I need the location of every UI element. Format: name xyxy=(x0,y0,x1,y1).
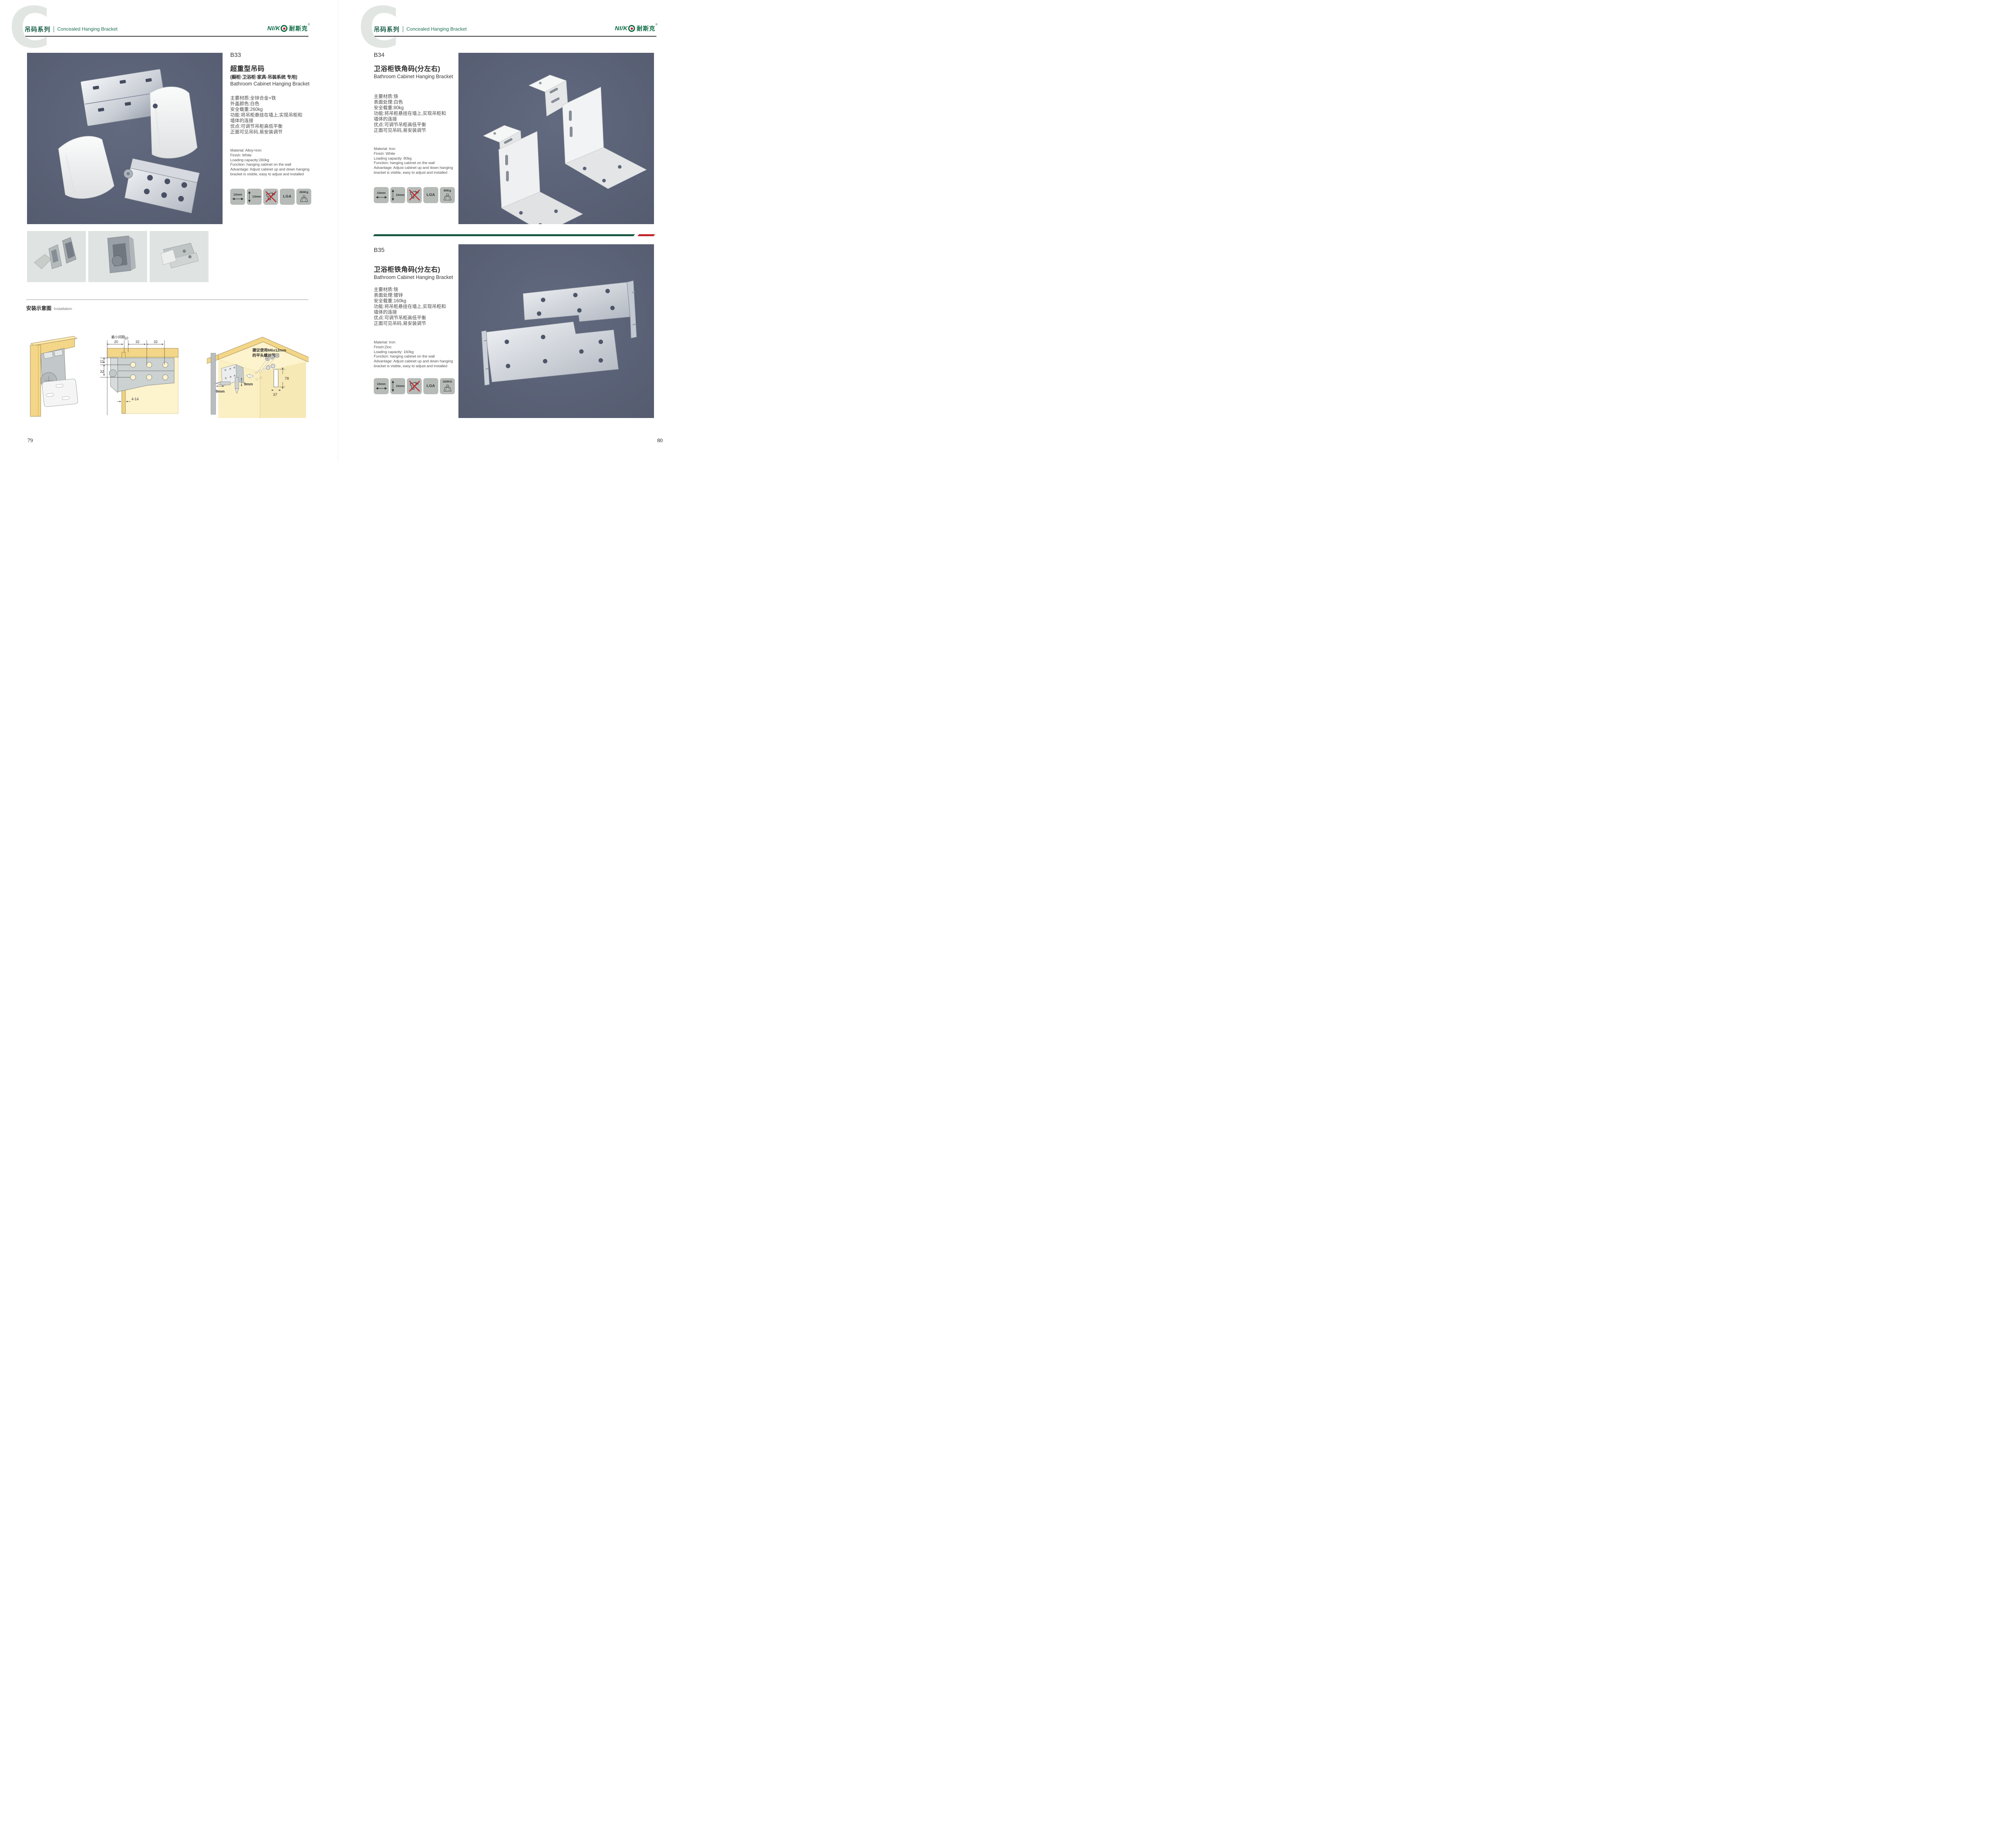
spec-line: Material: Alloy+iron xyxy=(230,148,316,153)
spec-line: Loading capacity: 160kg xyxy=(374,349,459,354)
spec-line: Function: hanging cabinet on the wall xyxy=(374,354,459,359)
product-title-cn: 卫浴柜铁角码(分左右) xyxy=(374,63,459,73)
spec-line: 功能:将吊柜悬挂在墙上,实现吊柜和 xyxy=(374,111,459,116)
mounting-slot xyxy=(274,369,278,387)
spec-line: 主要材质:铁 xyxy=(374,94,459,100)
product-title-en: Bathroom Cabinet Hanging Bracket xyxy=(230,81,316,87)
vertical-arrow-icon xyxy=(248,191,251,203)
feature-icons: 10mm 15mm xyxy=(374,378,459,394)
spec-line: Advantage: Adjust cabinet up and down ha… xyxy=(374,359,459,364)
icon-tile-height: 13mm xyxy=(247,189,262,205)
weight-icon xyxy=(298,195,310,203)
brand-latin: NI/K xyxy=(267,25,280,32)
product-b33: B33 超重型吊码 (橱柜·卫浴柜·家具·吊装系统 专用) Bathroom C… xyxy=(230,52,316,205)
feature-icons: 12mm 13mm xyxy=(230,189,316,205)
spec-line: 正面可见吊码,易安装调节 xyxy=(374,321,459,327)
installation-title-en: Installation xyxy=(54,307,72,311)
brand-logo: NI/K 耐斯克 ® xyxy=(267,24,310,33)
spec-line: 安全载重:160kg xyxy=(374,298,459,304)
installation-diagram-side xyxy=(26,334,81,418)
svg-text:4-14: 4-14 xyxy=(131,397,139,401)
registered-mark: ® xyxy=(308,23,310,26)
feature-icons: 10mm 15mm xyxy=(374,187,459,203)
brand-logo: NI/K 耐斯克 ® xyxy=(615,24,658,33)
product-b34: B34 卫浴柜铁角码(分左右) Bathroom Cabinet Hanging… xyxy=(374,52,459,203)
icon-tile-width: 10mm xyxy=(374,378,389,394)
page-header: 吊码系列 Concealed Hanging Bracket xyxy=(25,25,117,33)
product-title-en: Bathroom Cabinet Hanging Bracket xyxy=(374,275,459,280)
horizontal-arrow-icon xyxy=(232,197,244,201)
white-cover-plate xyxy=(42,379,78,407)
product-code: B35 xyxy=(374,247,459,254)
section-separator-red xyxy=(637,234,655,236)
spec-line: Material: Iron xyxy=(374,146,459,151)
installation-diagram-dimensions: 最小间距 20 10 32 32 11 32 4-14 xyxy=(99,335,183,418)
spec-line: Finish: White xyxy=(374,151,459,156)
width-value: 10mm xyxy=(377,191,386,195)
specs-cn: 主要材质:全锌合金+铁 外盖颜色:白色 安全载重:260kg 功能:将吊柜悬挂在… xyxy=(230,96,316,135)
b35-product-photo xyxy=(458,244,654,418)
spec-line: 主要材质:全锌合金+铁 xyxy=(230,96,316,101)
icon-tile-cert: LGA xyxy=(423,187,438,203)
icon-tile-load: 160KG xyxy=(440,378,455,394)
page-number-right: 80 xyxy=(657,437,663,444)
specs-en: Material: Iron Finish:Zinc Loading capac… xyxy=(374,340,459,368)
spec-line: bracket is visible, easy to adjust and i… xyxy=(374,364,459,368)
product-title-cn: 超重型吊码 xyxy=(230,63,316,73)
brand-cn: 耐斯克 xyxy=(289,24,308,33)
spec-line: 优点:可调节吊柜高低平衡 xyxy=(374,122,459,128)
product-code: B34 xyxy=(374,52,459,58)
svg-text:37: 37 xyxy=(273,393,277,397)
icon-tile-no-drill xyxy=(263,189,278,205)
spec-line: Advantage: Adjust cabinet up and down ha… xyxy=(374,165,459,170)
spec-line: 表面处理:白色 xyxy=(374,100,459,105)
header-rule xyxy=(25,36,308,37)
icon-tile-width: 12mm xyxy=(230,189,245,205)
product-title-cn: 卫浴柜铁角码(分左右) xyxy=(374,264,459,274)
b33-thumb-2 xyxy=(88,231,147,282)
spec-line: 优点:可调节吊柜高低平衡 xyxy=(230,124,316,129)
horizontal-arrow-icon xyxy=(375,387,387,390)
spec-line: Material: Iron xyxy=(374,340,459,345)
b34-product-photo xyxy=(458,53,654,224)
series-title-cn: 吊码系列 xyxy=(374,25,400,33)
svg-text:9mm: 9mm xyxy=(216,389,225,394)
spec-line: 墙体的连接 xyxy=(374,116,459,122)
spec-line: 主要材质:铁 xyxy=(374,287,459,293)
icon-tile-load: 260Kg xyxy=(296,189,311,205)
spec-line: Function: hanging cabinet on the wall xyxy=(230,162,316,167)
installation-title-cn: 安装示意图 xyxy=(26,304,52,312)
svg-text:10: 10 xyxy=(124,336,128,340)
series-title-en: Concealed Hanging Bracket xyxy=(406,26,467,32)
cert-label: LGA xyxy=(427,193,435,197)
b33-product-photo xyxy=(27,53,223,224)
weight-icon xyxy=(442,384,453,392)
icon-tile-width: 10mm xyxy=(374,187,389,203)
spec-line: 外盖颜色:白色 xyxy=(230,101,316,107)
icon-tile-height: 15mm xyxy=(390,378,405,394)
icon-tile-cert: LGA xyxy=(280,189,295,205)
spec-line: 安全载重:260kg xyxy=(230,107,316,112)
svg-text:11: 11 xyxy=(100,360,104,364)
catalog-spread: C 吊码系列 Concealed Hanging Bracket NI/K 耐斯… xyxy=(0,0,676,462)
brand-cn: 耐斯克 xyxy=(637,24,656,33)
svg-text:9mm: 9mm xyxy=(244,382,253,387)
load-value: 160KG xyxy=(443,380,452,383)
b33-thumb-1 xyxy=(27,231,86,282)
svg-text:32: 32 xyxy=(154,340,158,344)
height-value: 13mm xyxy=(252,195,261,198)
spec-line: bracket is visible, easy to adjust and i… xyxy=(374,170,459,175)
svg-text:32: 32 xyxy=(100,370,104,374)
horizontal-arrow-icon xyxy=(375,196,387,199)
page-number-left: 79 xyxy=(27,437,33,444)
spec-line: Loading capacity:260kg xyxy=(230,158,316,162)
section-separator-green xyxy=(373,234,635,236)
svg-text:32: 32 xyxy=(135,340,140,344)
cert-label: LGA xyxy=(427,384,435,388)
height-value: 15mm xyxy=(396,193,405,197)
header-divider xyxy=(54,26,54,32)
spec-line: bracket is visible, easy to adjust and i… xyxy=(230,172,316,177)
spec-line: Finish:Zinc xyxy=(374,345,459,349)
spec-line: 正面可见吊码,易安装调节 xyxy=(230,129,316,135)
spec-line: 功能:将吊柜悬挂在墙上,实现吊柜和 xyxy=(374,304,459,310)
series-title-en: Concealed Hanging Bracket xyxy=(57,26,117,32)
svg-text:建议使用M6x12mm: 建议使用M6x12mm xyxy=(252,348,286,353)
icon-tile-cert: LGA xyxy=(423,378,438,394)
spec-line: 表面处理:镀锌 xyxy=(374,293,459,298)
spec-line: 功能:将吊柜悬挂在墙上,实现吊柜和 xyxy=(230,112,316,118)
svg-text:最小间距: 最小间距 xyxy=(111,335,125,339)
installation-diagram-cabinet: 建议使用M6x12mm 的平头螺丝固定 78 xyxy=(207,334,308,418)
no-drill-icon xyxy=(408,189,421,202)
cert-label: LGA xyxy=(283,194,292,199)
specs-cn: 主要材质:铁 表面处理:白色 安全载重:80kg 功能:将吊柜悬挂在墙上,实现吊… xyxy=(374,94,459,133)
spec-line: 正面可见吊码,易安装调节 xyxy=(374,128,459,133)
specs-cn: 主要材质:铁 表面处理:镀锌 安全载重:160kg 功能:将吊柜悬挂在墙上,实现… xyxy=(374,287,459,327)
spec-line: 安全载重:80kg xyxy=(374,105,459,111)
no-drill-icon xyxy=(408,380,421,393)
icon-tile-height: 15mm xyxy=(390,187,405,203)
spec-line: Advantage: Adjust cabinet up and down ha… xyxy=(230,167,316,172)
icon-tile-no-drill xyxy=(407,187,422,203)
spec-line: 墙体的连接 xyxy=(374,310,459,315)
specs-en: Material: Alloy+iron Finish: White Loadi… xyxy=(230,148,316,177)
product-note: (橱柜·卫浴柜·家具·吊装系统 专用) xyxy=(230,74,316,80)
width-value: 10mm xyxy=(377,382,386,386)
product-title-en: Bathroom Cabinet Hanging Bracket xyxy=(374,74,459,79)
brand-logo-o-icon xyxy=(281,25,287,32)
load-value: 260Kg xyxy=(299,190,308,194)
svg-text:20: 20 xyxy=(114,340,118,344)
product-b35: B35 卫浴柜铁角码(分左右) Bathroom Cabinet Hanging… xyxy=(374,247,459,394)
spec-line: 优点:可调节吊柜高低平衡 xyxy=(374,315,459,321)
spec-line: Function: hanging cabinet on the wall xyxy=(374,160,459,165)
series-title-cn: 吊码系列 xyxy=(25,25,50,33)
product-code: B33 xyxy=(230,52,316,58)
spec-line: Finish: White xyxy=(230,153,316,158)
svg-text:78: 78 xyxy=(285,376,289,381)
header-divider xyxy=(403,26,403,32)
spec-line: 墙体的连接 xyxy=(230,118,316,124)
height-value: 15mm xyxy=(396,384,405,388)
load-value: 80Kg xyxy=(444,189,451,192)
weight-icon xyxy=(442,193,453,201)
icon-tile-no-drill xyxy=(407,378,422,394)
installation-rule xyxy=(26,300,308,300)
page-gutter xyxy=(338,0,338,462)
specs-en: Material: Iron Finish: White Loading cap… xyxy=(374,146,459,175)
spec-line: Loading capacity: 80kg xyxy=(374,156,459,161)
brand-logo-o-icon xyxy=(628,25,635,32)
icon-tile-load: 80Kg xyxy=(440,187,455,203)
page-header: 吊码系列 Concealed Hanging Bracket xyxy=(374,25,467,33)
brand-latin: NI/K xyxy=(615,25,628,32)
b33-thumb-3 xyxy=(150,231,208,282)
registered-mark: ® xyxy=(656,23,658,26)
vertical-arrow-icon xyxy=(391,189,395,201)
vertical-arrow-icon xyxy=(391,380,395,392)
width-value: 12mm xyxy=(233,193,242,196)
installation-title: 安装示意图 Installation xyxy=(26,304,72,312)
header-rule xyxy=(375,36,656,37)
no-drill-icon xyxy=(265,190,277,203)
